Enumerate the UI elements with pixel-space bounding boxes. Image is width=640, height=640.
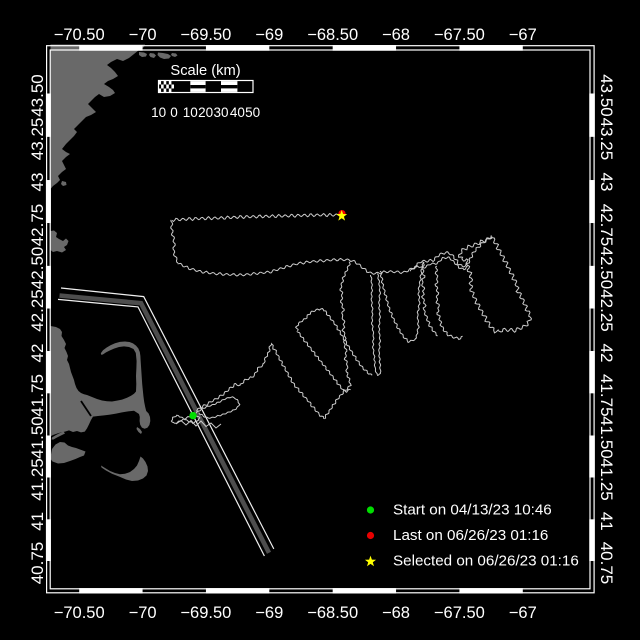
svg-text:10: 10 bbox=[151, 105, 166, 120]
svg-text:−68.50: −68.50 bbox=[307, 26, 358, 44]
svg-text:43.50: 43.50 bbox=[28, 74, 47, 117]
svg-text:41.25: 41.25 bbox=[597, 458, 616, 501]
svg-text:41.75: 41.75 bbox=[28, 374, 47, 417]
svg-text:−67: −67 bbox=[509, 26, 537, 44]
svg-text:40.75: 40.75 bbox=[597, 542, 616, 585]
svg-text:−70.50: −70.50 bbox=[54, 26, 105, 44]
svg-text:40: 40 bbox=[230, 105, 245, 120]
svg-text:20: 20 bbox=[198, 105, 213, 120]
svg-text:−68: −68 bbox=[382, 604, 410, 622]
svg-text:−67: −67 bbox=[509, 604, 537, 622]
svg-text:43.50: 43.50 bbox=[597, 74, 616, 117]
svg-text:43.25: 43.25 bbox=[597, 118, 616, 161]
svg-text:50: 50 bbox=[245, 105, 260, 120]
svg-text:41.25: 41.25 bbox=[28, 458, 47, 501]
svg-text:−69: −69 bbox=[255, 604, 283, 622]
svg-text:41.50: 41.50 bbox=[28, 416, 47, 459]
svg-text:−67.50: −67.50 bbox=[434, 604, 485, 622]
svg-text:41: 41 bbox=[28, 512, 47, 531]
svg-text:42.75: 42.75 bbox=[597, 204, 616, 247]
svg-text:−70: −70 bbox=[129, 26, 157, 44]
svg-text:10: 10 bbox=[183, 105, 198, 120]
svg-text:42.25: 42.25 bbox=[28, 289, 47, 332]
svg-text:42.50: 42.50 bbox=[597, 247, 616, 290]
svg-text:42.25: 42.25 bbox=[597, 289, 616, 332]
svg-text:Last on 06/26/23 01:16: Last on 06/26/23 01:16 bbox=[393, 527, 548, 544]
svg-text:−69.50: −69.50 bbox=[180, 604, 231, 622]
svg-text:41.50: 41.50 bbox=[597, 416, 616, 459]
svg-text:Scale (km): Scale (km) bbox=[170, 63, 240, 79]
svg-text:43.25: 43.25 bbox=[28, 118, 47, 161]
svg-text:41: 41 bbox=[597, 512, 616, 531]
svg-text:42: 42 bbox=[28, 344, 47, 363]
svg-text:42: 42 bbox=[597, 344, 616, 363]
svg-text:43: 43 bbox=[597, 173, 616, 192]
svg-text:43: 43 bbox=[28, 173, 47, 192]
svg-text:40.75: 40.75 bbox=[28, 542, 47, 585]
svg-text:−68: −68 bbox=[382, 26, 410, 44]
svg-text:−68.50: −68.50 bbox=[307, 604, 358, 622]
svg-text:42.50: 42.50 bbox=[28, 247, 47, 290]
svg-text:−67.50: −67.50 bbox=[434, 26, 485, 44]
svg-text:30: 30 bbox=[213, 105, 228, 120]
svg-text:−69.50: −69.50 bbox=[180, 26, 231, 44]
svg-text:−70: −70 bbox=[129, 604, 157, 622]
svg-text:−70.50: −70.50 bbox=[54, 604, 105, 622]
svg-text:42.75: 42.75 bbox=[28, 204, 47, 247]
svg-text:Start on 04/13/23 10:46: Start on 04/13/23 10:46 bbox=[393, 501, 552, 518]
svg-text:−69: −69 bbox=[255, 26, 283, 44]
svg-text:0: 0 bbox=[170, 105, 178, 120]
svg-text:Selected on 06/26/23 01:16: Selected on 06/26/23 01:16 bbox=[393, 552, 579, 569]
svg-text:41.75: 41.75 bbox=[597, 374, 616, 417]
